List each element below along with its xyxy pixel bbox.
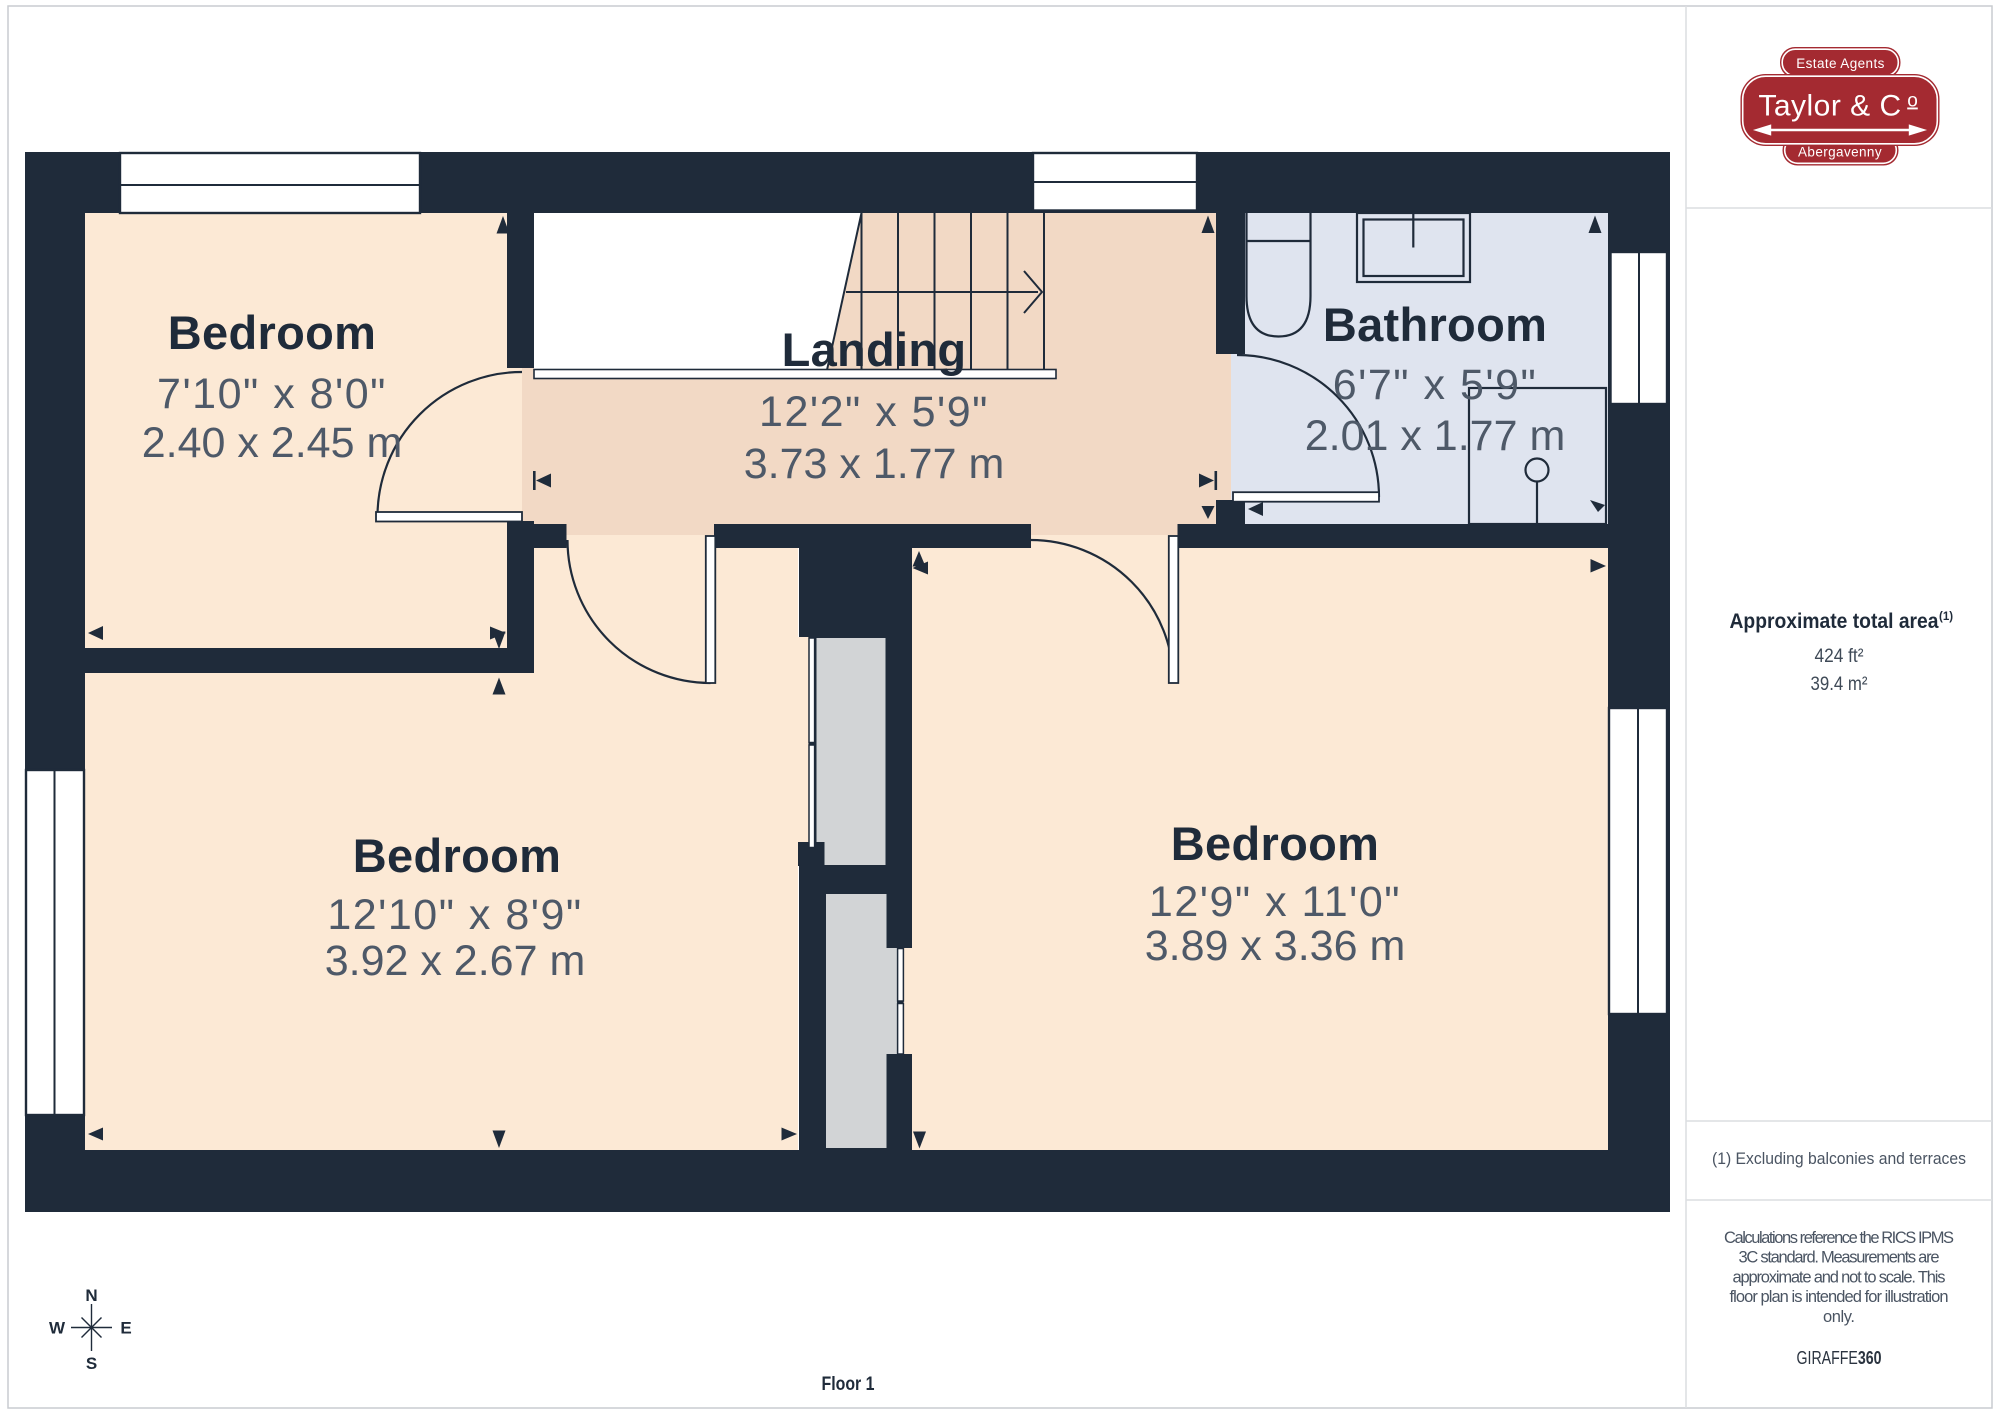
svg-text:7'10" x 8'0": 7'10" x 8'0" (157, 370, 387, 418)
svg-text:Landing: Landing (782, 323, 967, 376)
svg-text:424 ft²: 424 ft² (1815, 645, 1864, 667)
svg-text:only.: only. (1823, 1308, 1855, 1326)
svg-text:Estate Agents: Estate Agents (1796, 56, 1885, 71)
svg-text:Bedroom: Bedroom (168, 306, 376, 359)
svg-text:(1): (1) (1939, 611, 1953, 623)
svg-text:N: N (85, 1286, 97, 1305)
svg-text:Bedroom: Bedroom (353, 829, 561, 882)
svg-text:12'9" x 11'0": 12'9" x 11'0" (1149, 878, 1401, 926)
svg-text:12'2" x 5'9": 12'2" x 5'9" (759, 388, 989, 436)
svg-text:3.73 x 1.77 m: 3.73 x 1.77 m (744, 440, 1005, 488)
svg-text:3C standard. Measurements are: 3C standard. Measurements are (1739, 1249, 1940, 1267)
svg-text:Abergavenny: Abergavenny (1798, 145, 1882, 160)
svg-text:39.4 m²: 39.4 m² (1811, 673, 1868, 695)
svg-text:o: o (1907, 91, 1918, 112)
svg-text:approximate and not to scale.: approximate and not to scale. This (1733, 1268, 1946, 1286)
svg-text:6'7" x 5'9": 6'7" x 5'9" (1333, 361, 1538, 409)
svg-text:S: S (86, 1354, 97, 1373)
svg-text:2.40 x 2.45 m: 2.40 x 2.45 m (142, 419, 403, 467)
svg-text:W: W (49, 1319, 66, 1338)
svg-text:Bedroom: Bedroom (1171, 817, 1379, 870)
svg-text:3.89 x 3.36 m: 3.89 x 3.36 m (1145, 922, 1406, 970)
svg-text:Bathroom: Bathroom (1323, 298, 1547, 351)
svg-text:(1) Excluding balconies and te: (1) Excluding balconies and terraces (1712, 1150, 1966, 1168)
svg-text:Approximate total area: Approximate total area (1730, 609, 1940, 633)
svg-text:2.01 x 1.77 m: 2.01 x 1.77 m (1305, 412, 1566, 460)
svg-text:GIRAFFE360: GIRAFFE360 (1797, 1348, 1882, 1368)
svg-text:Floor 1: Floor 1 (822, 1373, 875, 1395)
svg-text:Calculations reference the RIC: Calculations reference the RICS IPMS (1724, 1229, 1954, 1247)
svg-text:3.92 x 2.67 m: 3.92 x 2.67 m (325, 937, 586, 985)
svg-text:12'10" x 8'9": 12'10" x 8'9" (327, 891, 582, 939)
svg-text:Taylor & C: Taylor & C (1758, 90, 1901, 123)
svg-text:floor plan is intended for ill: floor plan is intended for illustration (1730, 1288, 1949, 1306)
svg-text:E: E (120, 1319, 131, 1338)
